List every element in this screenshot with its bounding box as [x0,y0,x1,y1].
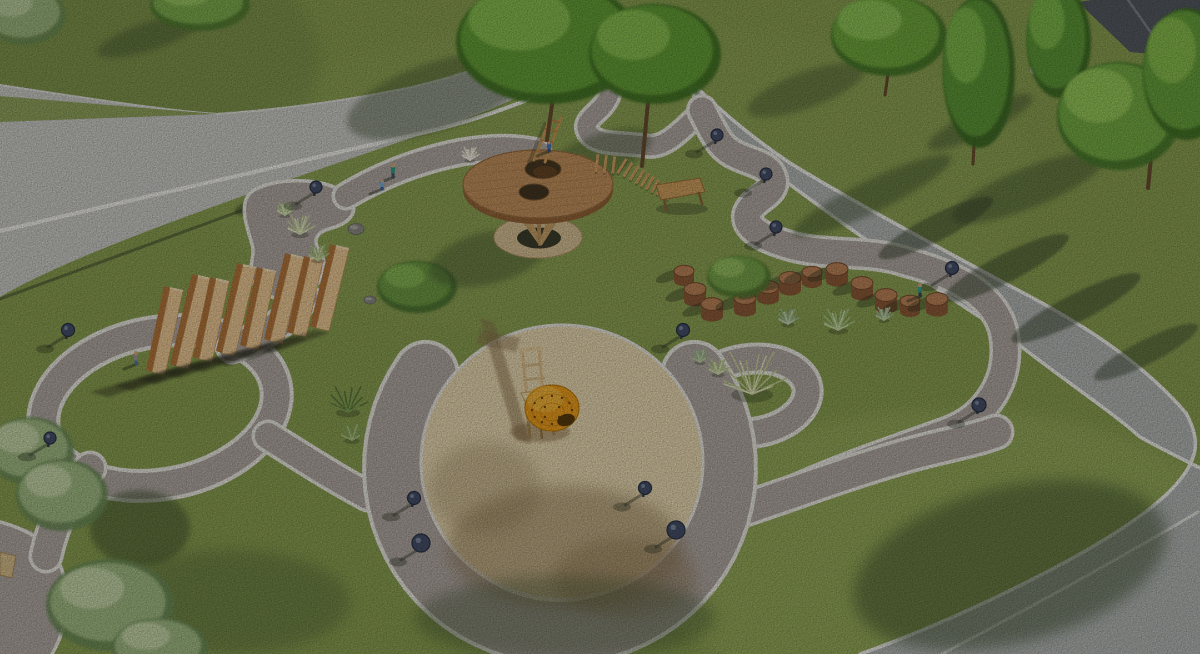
park-3d-render-scene [0,0,1200,654]
film-grain [0,0,1200,654]
scene-layers [0,0,1200,654]
playground-render-viewport [0,0,1200,654]
